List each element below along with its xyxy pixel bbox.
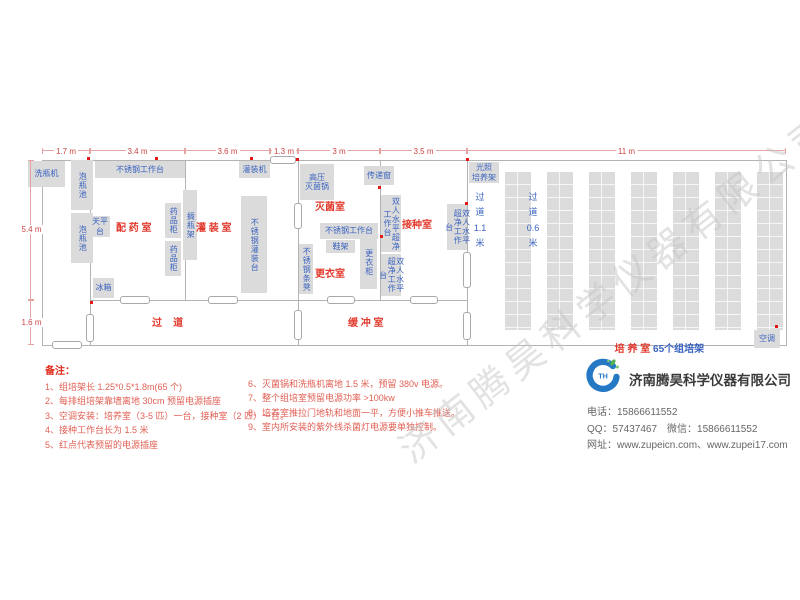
power-outlet-dot — [466, 158, 469, 161]
room-changing-label: 更衣室 — [315, 265, 345, 280]
contact-line: QQ：57437467 微信：15866611552 — [587, 422, 791, 439]
equipment-steel-workbench-1: 不锈钢工作台 — [95, 161, 185, 178]
equipment-autoclave: 高压 灭菌锅 — [300, 164, 334, 200]
door-symbol — [270, 156, 296, 164]
dimension-label: 1.3 m — [272, 147, 296, 156]
note-item: 8、培养室推拉门地轨和地面一平，方便小推车推送。 — [248, 406, 478, 420]
power-outlet-dot — [155, 157, 158, 160]
power-outlet-dot — [465, 202, 468, 205]
equipment-medicine-cabinet-1: 药品柜 — [165, 203, 181, 238]
culture-rack — [547, 172, 573, 330]
door-symbol — [294, 203, 302, 229]
dimension-label: 11 m — [616, 147, 637, 156]
dimension-top: 3.4 m — [90, 150, 185, 152]
power-outlet-dot — [296, 158, 299, 161]
room-filling-label: 灌 装 室 — [196, 219, 232, 234]
power-outlet-dot — [90, 301, 93, 304]
equipment-locker: 更衣柜 — [360, 236, 377, 289]
power-outlet-dot — [250, 157, 253, 160]
equipment-shoe-rack: 鞋架 — [326, 240, 355, 253]
notes-title: 备注： — [45, 362, 289, 377]
culture-room-name: 培 养 室 — [615, 344, 653, 355]
dimension-label: 3.4 m — [125, 147, 149, 156]
corridor-label: 过 道 — [152, 314, 183, 329]
dimension-top: 3.5 m — [380, 150, 467, 152]
equipment-soak-pool-1: 泡瓶池 — [71, 160, 93, 210]
culture-rack — [631, 172, 657, 330]
equipment-balance-table: 天平台 — [90, 216, 110, 237]
svg-text:TH: TH — [598, 372, 608, 381]
culture-rack-count: 65个组培架 — [653, 344, 704, 355]
power-outlet-dot — [87, 157, 90, 160]
culture-rack — [715, 172, 741, 330]
door-symbol — [208, 296, 238, 304]
culture-rack — [673, 172, 699, 330]
power-outlet-dot — [775, 325, 778, 328]
dimension-top: 3 m — [298, 150, 380, 152]
equipment-fridge: 冰箱 — [93, 278, 114, 298]
contact-line: 网址：www.zupeicn.com、www.zupei17.com — [587, 438, 791, 455]
note-item: 5、红点代表预留的电源插座 — [45, 438, 289, 452]
note-item: 6、灭菌锅和洗瓶机离地 1.5 米，预留 380v 电源。 — [248, 377, 478, 391]
equipment-medicine-cabinet-2: 药品柜 — [165, 241, 181, 276]
dimension-top: 1.7 m — [42, 150, 90, 152]
equipment-air-conditioner: 空调 — [754, 330, 780, 348]
door-symbol — [463, 252, 471, 288]
note-item: 7、整个组培室预留电源功率 >100kw — [248, 391, 478, 405]
door-symbol — [294, 310, 302, 340]
aisle-0-6m-label: 过 道 0.6 米 — [525, 190, 541, 251]
door-symbol — [86, 314, 94, 342]
dimension-left: 5.4 m — [30, 160, 32, 300]
equipment-clean-bench-3: 双人水平超净工作台 — [447, 204, 467, 250]
dimension-label: 5.4 m — [19, 225, 43, 234]
room-dispensing-label: 配 药 室 — [116, 219, 152, 234]
company-contact-lines: 电话：15866611552QQ：57437467 微信：15866611552… — [587, 405, 791, 455]
dimension-label: 3.6 m — [215, 147, 239, 156]
company-logo: TH — [585, 358, 621, 399]
equipment-filling-machine: 灌装机 — [239, 161, 270, 178]
dimension-top: 11 m — [467, 150, 786, 152]
equipment-bottle-rack: 搁瓶架 — [183, 190, 197, 260]
floor-plan-page: 洗瓶机泡瓶池泡瓶池不锈钢工作台灌装机天平台药品柜药品柜搁瓶架不锈钢灌装台冰箱高压… — [0, 0, 800, 600]
door-symbol — [410, 296, 438, 304]
room-sterilizing-label: 灭菌室 — [315, 198, 345, 213]
dimension-left: 1.6 m — [30, 300, 32, 345]
equipment-steel-filling-table: 不锈钢灌装台 — [241, 196, 267, 293]
power-outlet-dot — [380, 235, 383, 238]
notes-section: 备注： 1、组培架长 1.25*0.5*1.8m(65 个)2、每排组培架靠墙离… — [45, 362, 289, 452]
culture-rack — [589, 172, 615, 330]
dimension-label: 3 m — [330, 147, 347, 156]
notes-right-column: 6、灭菌锅和洗瓶机离地 1.5 米，预留 380v 电源。7、整个组培室预留电源… — [248, 377, 478, 435]
room-inoculation-label: 接种室 — [402, 216, 432, 231]
dimension-top: 3.6 m — [185, 150, 270, 152]
culture-rack — [757, 172, 783, 330]
door-symbol — [327, 296, 355, 304]
door-symbol — [120, 296, 150, 304]
equipment-bottle-washer: 洗瓶机 — [28, 161, 65, 187]
dimension-label: 1.6 m — [19, 318, 43, 327]
equipment-light-culture-rack: 光照 培养架 — [469, 162, 499, 183]
equipment-clean-bench-1: 双人水平超净工作台 — [381, 195, 401, 252]
room-buffer-label: 缓 冲 室 — [348, 314, 384, 329]
equipment-pass-through-window: 传递窗 — [364, 166, 394, 185]
door-symbol — [52, 341, 82, 349]
door-symbol — [463, 312, 471, 340]
company-name: 济南腾昊科学仪器有限公司 — [629, 369, 791, 389]
dimension-top: 1.3 m — [270, 150, 298, 152]
equipment-clean-bench-2: 双人水平超净工作台 — [381, 254, 401, 296]
wall-right — [786, 160, 787, 346]
note-item: 9、室内所安装的紫外线杀菌灯电源要单独控制。 — [248, 420, 478, 434]
dimension-label: 3.5 m — [411, 147, 435, 156]
dimension-label: 1.7 m — [54, 147, 78, 156]
aisle-1-1m-label: 过 道 1.1 米 — [472, 190, 488, 251]
company-info: TH 济南腾昊科学仪器有限公司 电话：15866611552QQ：5743746… — [585, 358, 791, 455]
contact-line: 电话：15866611552 — [587, 405, 791, 422]
equipment-steel-bench: 不锈钢条凳 — [299, 244, 313, 294]
power-outlet-dot — [378, 186, 381, 189]
